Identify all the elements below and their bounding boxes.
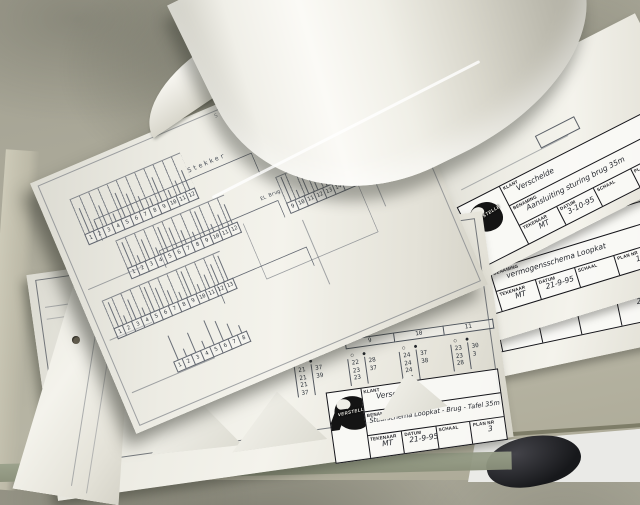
value: 37: [301, 388, 312, 397]
value-group: ○ ● 232328 303: [449, 334, 487, 371]
value: 39: [316, 371, 327, 380]
dot-column: 303: [467, 340, 488, 369]
value: 23: [353, 373, 364, 382]
field-plannr: PLAN NR 3: [471, 417, 507, 443]
dot-column: 2837: [364, 355, 385, 384]
field-schaal: SCHAAL: [436, 422, 473, 449]
value-columns: 232328 303: [450, 340, 487, 371]
punch-hole: [72, 336, 80, 344]
value-columns: 222323 2837: [347, 355, 384, 386]
value: 37: [369, 363, 380, 372]
value: 3: [472, 349, 483, 358]
field-label: SCHAAL: [438, 423, 468, 432]
value-group: ○ ● 24242437 3738: [398, 341, 437, 382]
value-group: ○ ● 222323 2837: [346, 349, 384, 386]
value: 38: [421, 356, 432, 365]
schematic-mini-rect: [535, 116, 581, 148]
field-datum: DATUM 21-9-95: [402, 427, 439, 454]
field-value: 21-9-95: [405, 433, 435, 444]
value: 28: [456, 359, 467, 368]
photo-canvas: { "logo_text": "VERSTELLE", "tb_labels":…: [0, 0, 640, 480]
field-tekenaar: TEKENAAR MT: [368, 431, 405, 458]
